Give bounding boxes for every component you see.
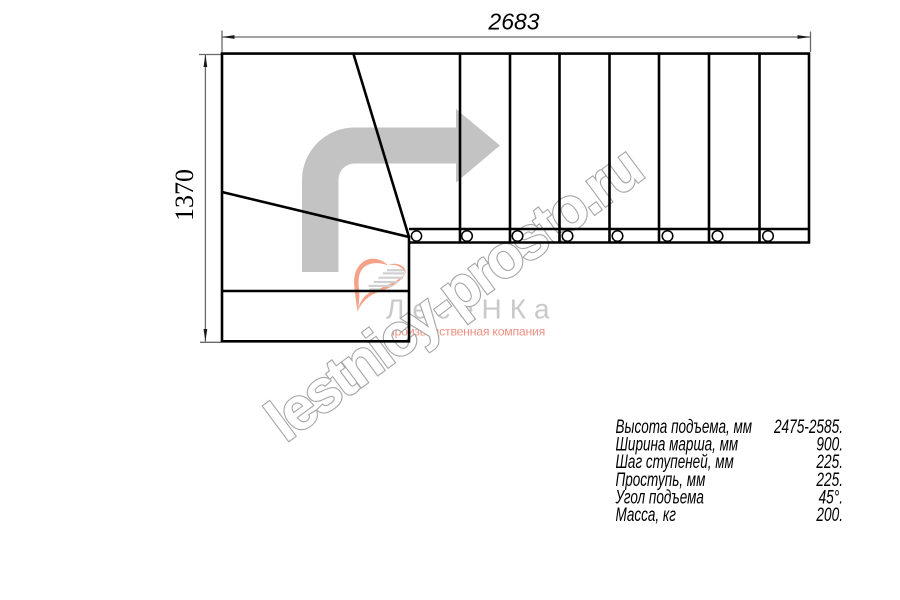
svg-text:2683: 2683: [487, 9, 539, 35]
svg-text:200.: 200.: [816, 504, 843, 526]
svg-text:1370: 1370: [170, 169, 199, 221]
svg-text:Масса, кг: Масса, кг: [616, 504, 676, 526]
